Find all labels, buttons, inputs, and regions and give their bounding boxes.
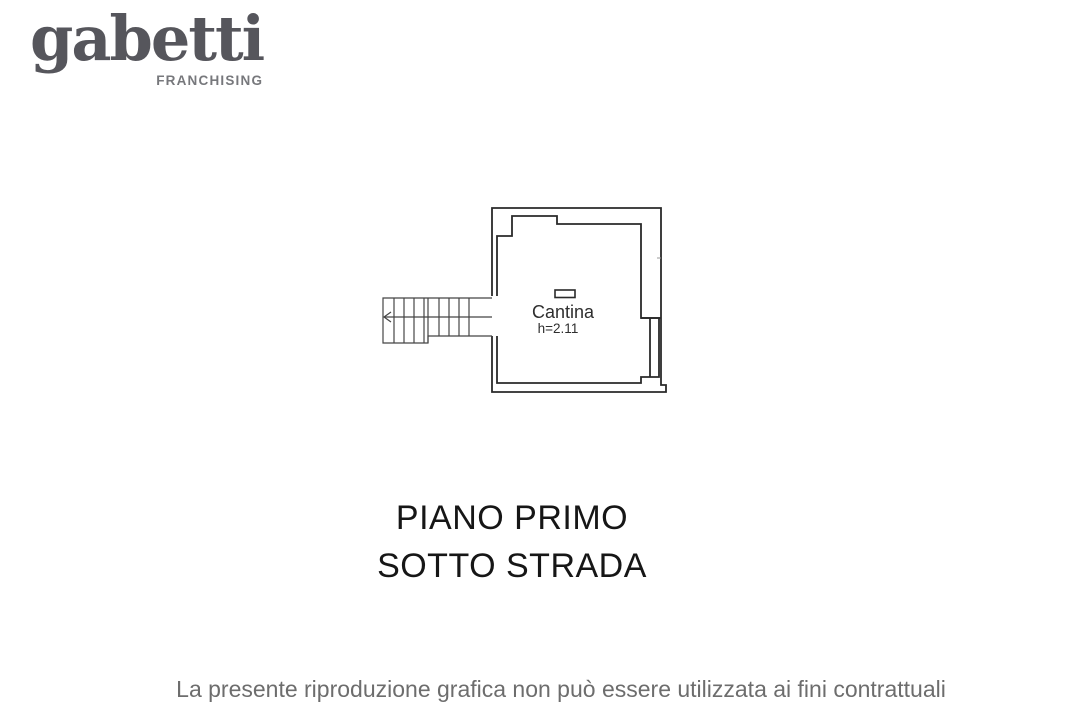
room-name-label: Cantina: [532, 302, 595, 322]
gabetti-logo: gabetti FRANCHISING: [30, 8, 263, 88]
floor-title: PIANO PRIMO SOTTO STRADA: [0, 494, 1024, 590]
disclaimer-text: La presente riproduzione grafica non può…: [176, 676, 946, 702]
floor-title-line1: PIANO PRIMO: [0, 494, 1024, 542]
room-inner-wall: [497, 216, 659, 383]
floor-plan-page: gabetti FRANCHISING: [0, 0, 1080, 720]
floor-plan-drawing: Cantina h=2.11: [360, 185, 690, 410]
window-recess: [641, 318, 661, 377]
floor-title-line2: SOTTO STRADA: [0, 542, 1024, 590]
logo-wordmark: gabetti: [30, 8, 263, 70]
staircase: [383, 298, 492, 343]
room-outer-wall: [492, 208, 666, 392]
room-height-label: h=2.11: [538, 321, 579, 336]
logo-subtitle: FRANCHISING: [30, 73, 263, 88]
pillar-marker: [555, 290, 575, 298]
